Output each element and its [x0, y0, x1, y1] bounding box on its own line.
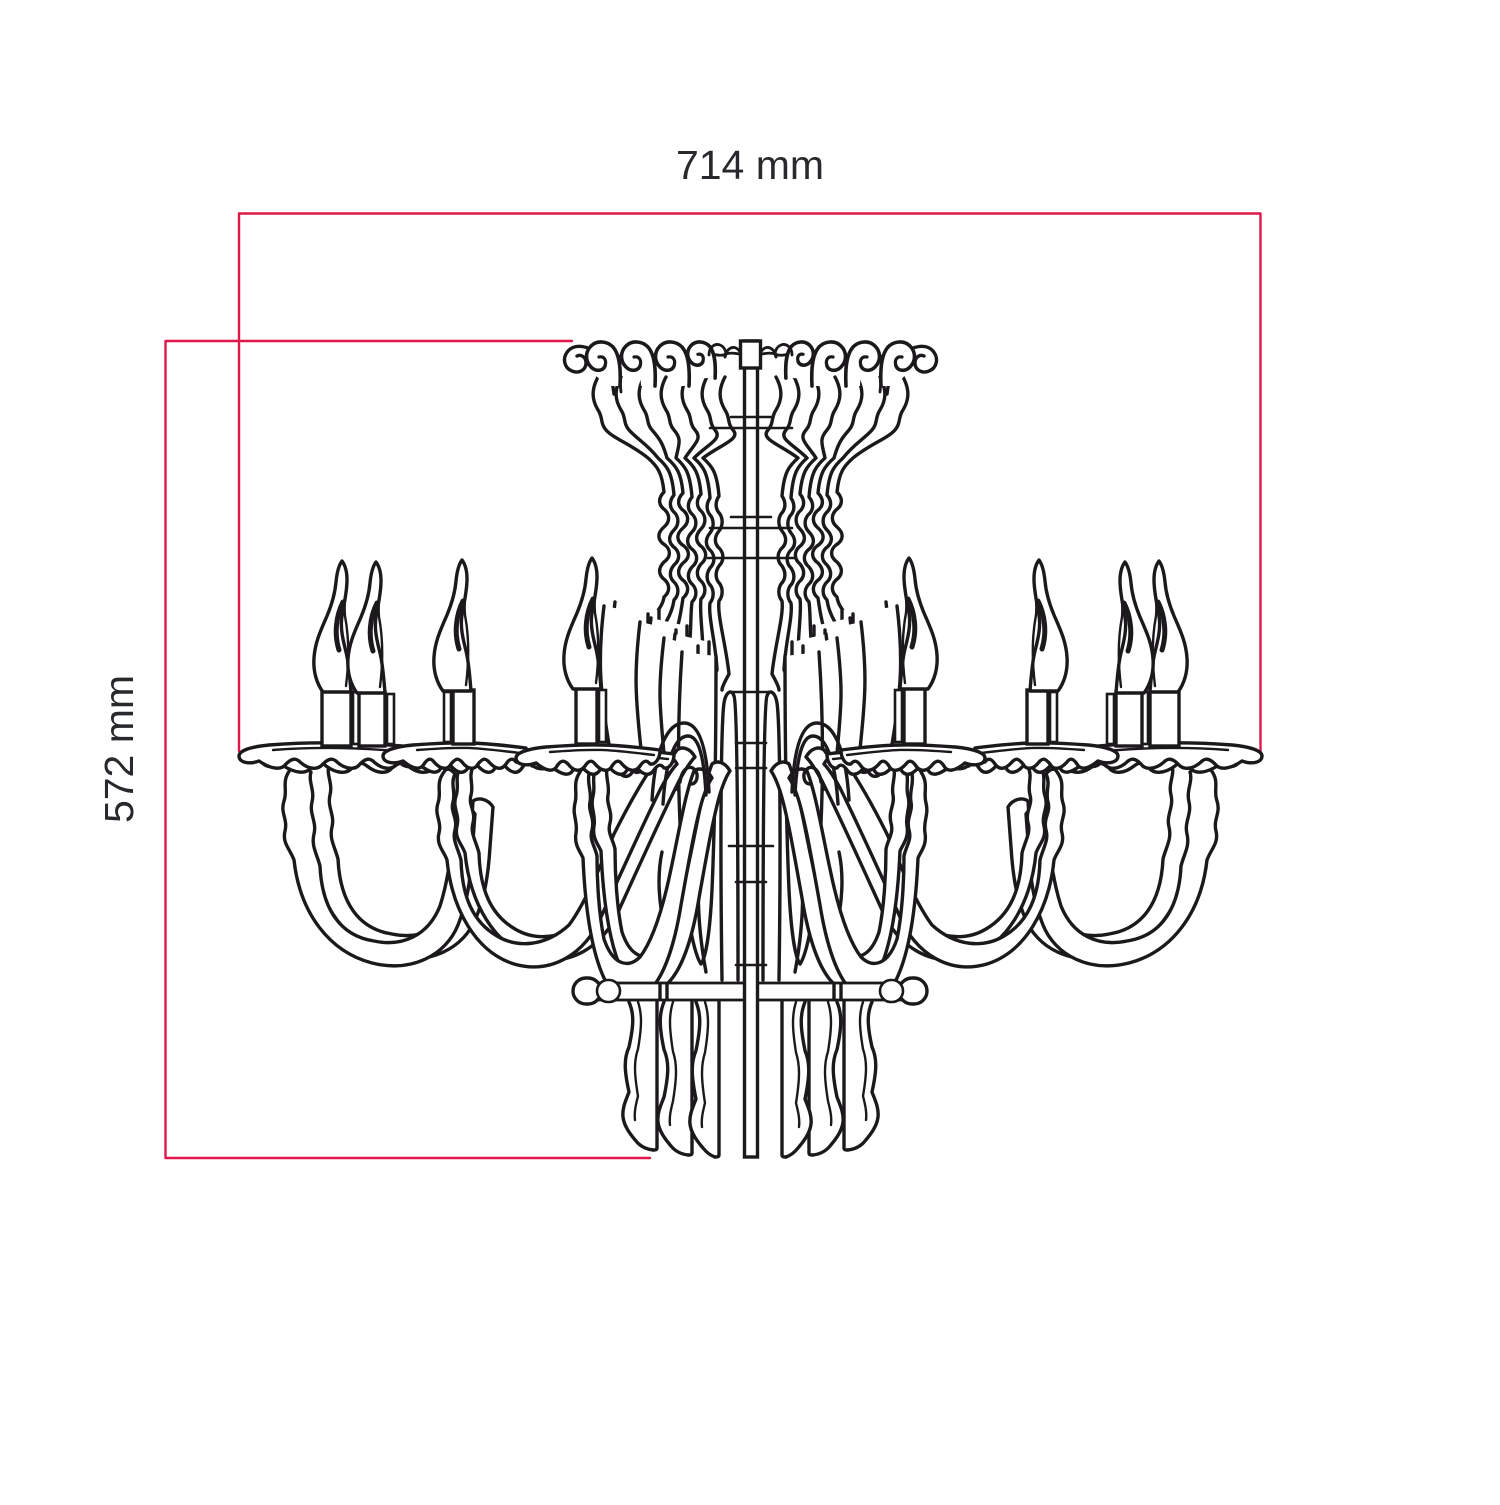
svg-text:572 mm: 572 mm — [96, 675, 142, 823]
svg-text:714 mm: 714 mm — [676, 142, 824, 188]
